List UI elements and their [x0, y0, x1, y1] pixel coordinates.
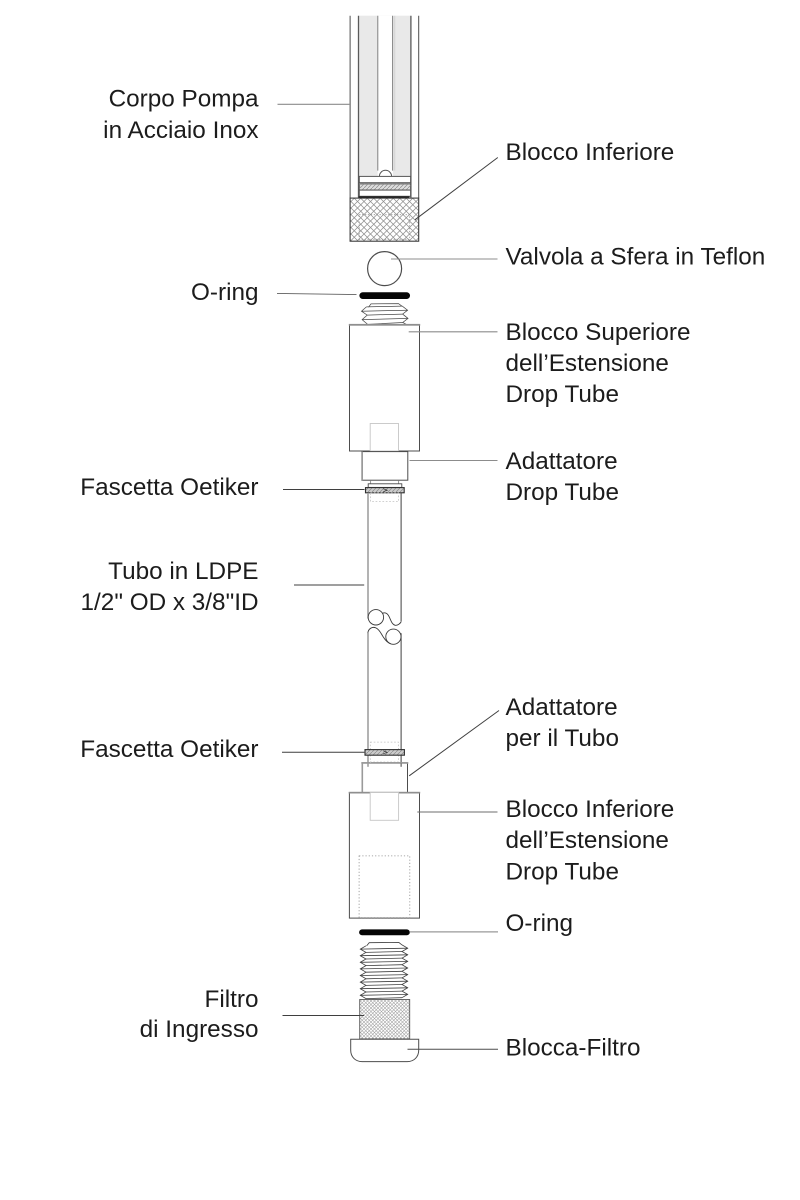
svg-text:1/2" OD x 3/8"ID: 1/2" OD x 3/8"ID — [81, 589, 259, 616]
svg-text:Blocco Superiore: Blocco Superiore — [506, 319, 691, 346]
svg-text:dell’Estensione: dell’Estensione — [506, 827, 669, 854]
svg-text:Blocco Inferiore: Blocco Inferiore — [506, 796, 675, 823]
svg-text:per il Tubo: per il Tubo — [506, 725, 619, 752]
svg-text:Drop Tube: Drop Tube — [506, 859, 619, 886]
svg-text:dell’Estensione: dell’Estensione — [506, 350, 669, 377]
svg-text:Fascetta Oetiker: Fascetta Oetiker — [80, 736, 258, 763]
svg-text:Blocca-Filtro: Blocca-Filtro — [506, 1035, 641, 1062]
svg-text:in Acciaio Inox: in Acciaio Inox — [103, 117, 258, 144]
svg-text:Adattatore: Adattatore — [506, 694, 618, 721]
svg-text:Corpo Pompa: Corpo Pompa — [109, 86, 259, 113]
svg-text:Valvola a Sfera in Teflon: Valvola a Sfera in Teflon — [506, 244, 766, 271]
svg-text:di Ingresso: di Ingresso — [140, 1016, 259, 1043]
svg-text:Drop Tube: Drop Tube — [506, 479, 619, 506]
svg-text:Drop Tube: Drop Tube — [506, 381, 619, 408]
svg-text:Fascetta Oetiker: Fascetta Oetiker — [80, 474, 258, 501]
svg-text:O-ring: O-ring — [506, 910, 574, 937]
svg-text:Blocco Inferiore: Blocco Inferiore — [506, 139, 675, 166]
svg-text:Filtro: Filtro — [205, 986, 259, 1013]
svg-text:Tubo in LDPE: Tubo in LDPE — [108, 558, 258, 585]
svg-text:O-ring: O-ring — [191, 279, 259, 306]
svg-text:Adattatore: Adattatore — [506, 448, 618, 475]
